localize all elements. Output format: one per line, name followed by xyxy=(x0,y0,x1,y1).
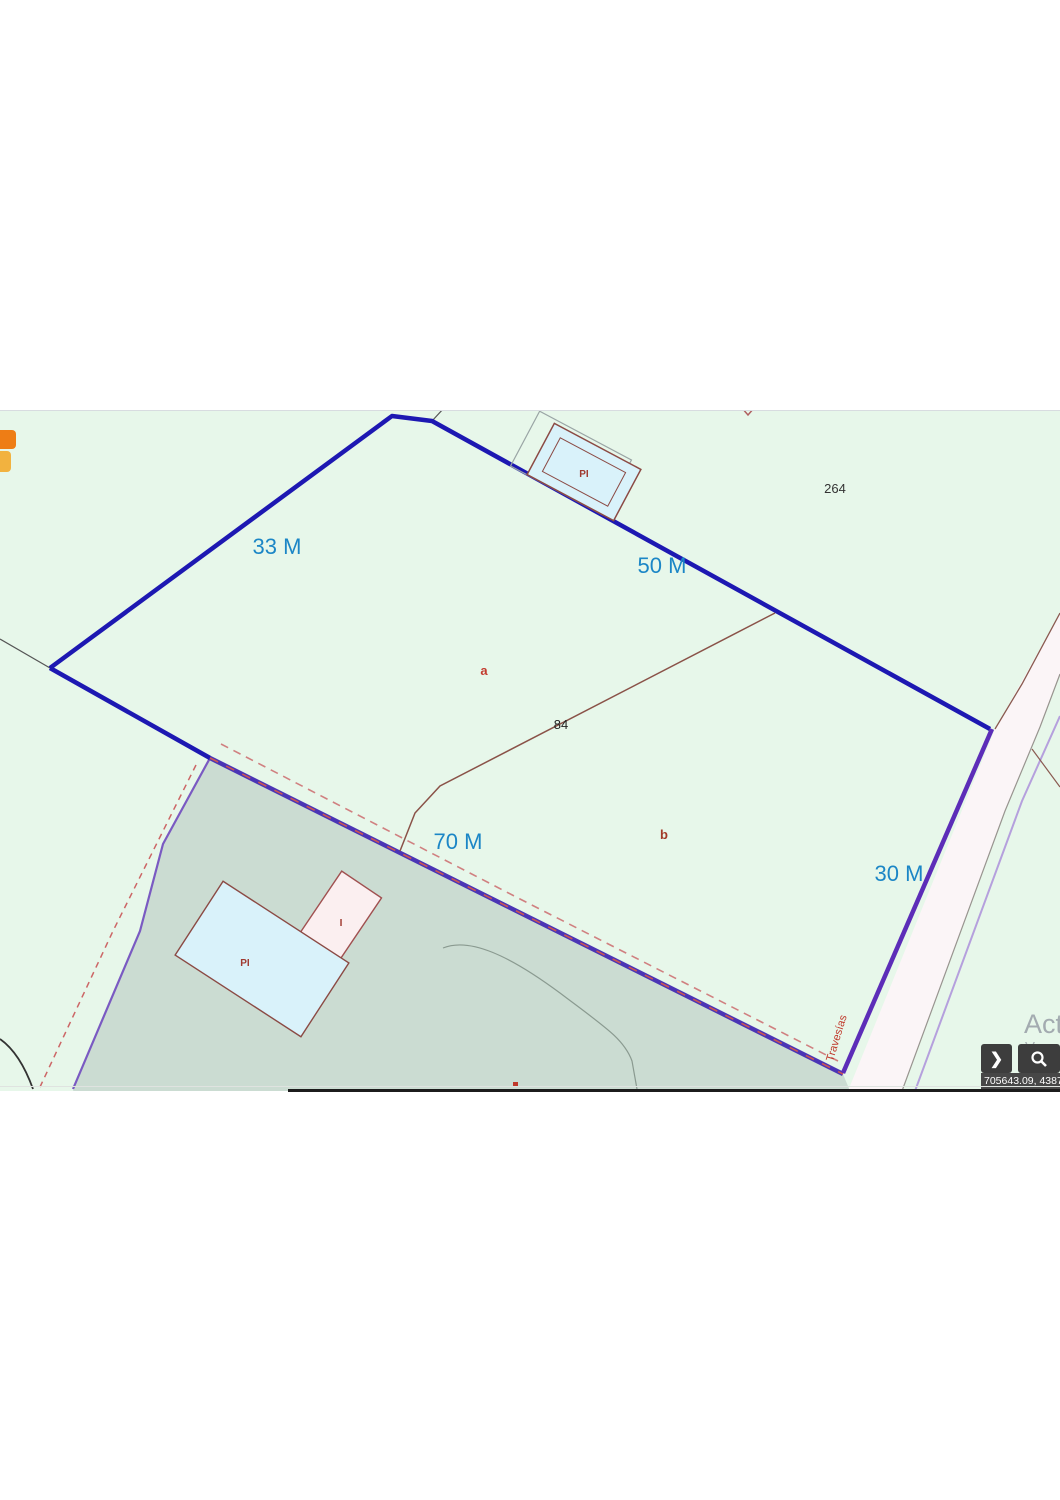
next-panel-button[interactable]: ❯ xyxy=(981,1044,1012,1073)
neighbor-parcel-label: 264 xyxy=(824,481,846,496)
orange-tool-button-top[interactable] xyxy=(0,430,16,449)
measurement-label-50m: 50 M xyxy=(638,553,687,578)
watermark-line1: Acti xyxy=(1024,1009,1060,1040)
cadastral-map-page: 33 M 50 M 70 M 30 M 264 84 a b PI PI I T… xyxy=(0,0,1060,1500)
chevron-right-icon: ❯ xyxy=(990,1049,1003,1069)
map-bottom-hairline xyxy=(0,1086,1060,1087)
measurement-label-70m: 70 M xyxy=(434,829,483,854)
map-canvas[interactable]: 33 M 50 M 70 M 30 M 264 84 a b PI PI I T… xyxy=(0,411,1060,1091)
subparcel-b-label: b xyxy=(660,827,668,842)
top-building-label: PI xyxy=(579,469,589,480)
main-building-label: PI xyxy=(240,958,250,969)
measurement-label-33m: 33 M xyxy=(253,534,302,559)
zoom-search-button[interactable] xyxy=(1018,1044,1060,1073)
map-viewport: 33 M 50 M 70 M 30 M 264 84 a b PI PI I T… xyxy=(0,410,1060,1091)
subparcel-a-label: a xyxy=(480,663,488,678)
map-bottom-border xyxy=(288,1089,1060,1092)
coordinates-readout: 705643.09, 43871 xyxy=(981,1073,1060,1090)
annex-building-label: I xyxy=(340,918,343,929)
parcel-number-label: 84 xyxy=(554,717,568,732)
magnifier-icon xyxy=(1030,1050,1048,1068)
orange-tool-button-bottom[interactable] xyxy=(0,451,11,472)
measurement-label-30m: 30 M xyxy=(875,861,924,886)
